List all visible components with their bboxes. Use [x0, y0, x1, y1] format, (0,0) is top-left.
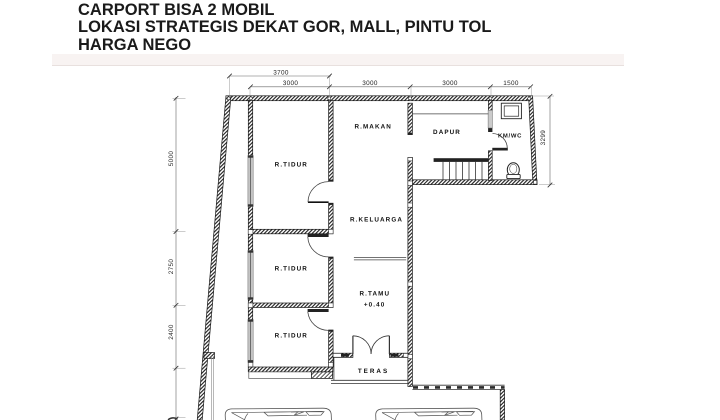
svg-text:KM/WC: KM/WC [498, 133, 522, 140]
svg-text:R.TIDUR: R.TIDUR [275, 161, 308, 168]
svg-text:R.MAKAN: R.MAKAN [354, 123, 391, 130]
svg-text:R.TIDUR: R.TIDUR [275, 332, 308, 339]
svg-text:3000: 3000 [362, 80, 378, 87]
svg-text:3000: 3000 [442, 80, 458, 87]
svg-text:R.TIDUR: R.TIDUR [275, 266, 308, 273]
svg-text:TERAS: TERAS [358, 368, 389, 375]
svg-text:DAPUR: DAPUR [433, 129, 461, 136]
svg-text:R.TAMU: R.TAMU [359, 290, 390, 297]
svg-text:3299: 3299 [540, 130, 547, 146]
svg-text:3000: 3000 [283, 80, 299, 87]
svg-text:R.KELUARGA: R.KELUARGA [350, 217, 403, 224]
svg-text:2400: 2400 [168, 324, 175, 340]
svg-text:1500: 1500 [503, 80, 519, 87]
svg-text:2750: 2750 [168, 259, 175, 275]
svg-text:5000: 5000 [168, 151, 175, 167]
svg-text:3700: 3700 [273, 70, 289, 77]
svg-text:+0.40: +0.40 [364, 301, 385, 308]
